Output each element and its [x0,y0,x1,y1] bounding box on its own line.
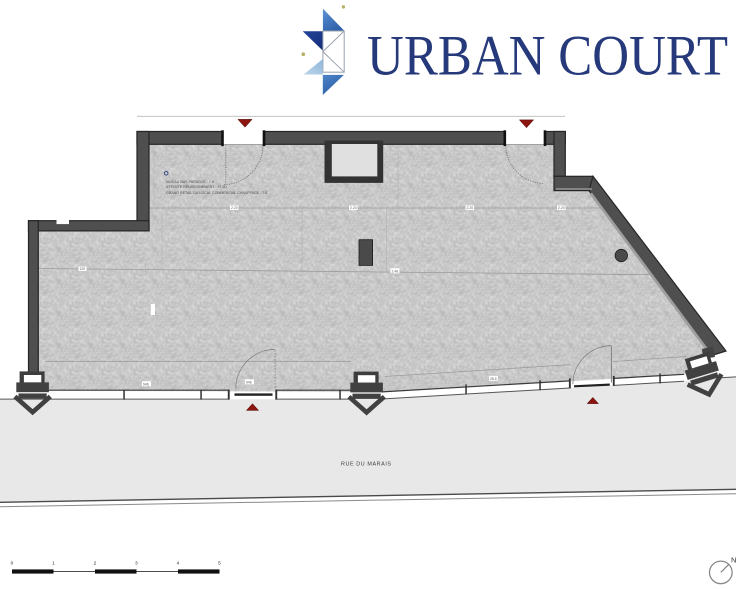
svg-text:0: 0 [11,561,14,566]
svg-text:NIVEAU BAS PARDOSE : 7.8: NIVEAU BAS PARDOSE : 7.8 [166,180,214,184]
svg-text:2.20: 2.20 [467,206,474,210]
svg-text:URBAN COURT: URBAN COURT [367,25,728,88]
svg-text:2.46: 2.46 [392,269,399,273]
svg-text:120: 120 [80,267,86,271]
svg-text:N: N [731,556,736,565]
svg-text:RUE DU MARAIS: RUE DU MARAIS [341,462,392,468]
svg-text:2: 2 [94,561,97,566]
svg-text:4: 4 [177,561,180,566]
svg-text:28.5: 28.5 [490,377,497,381]
svg-text:946: 946 [246,380,252,384]
svg-text:GRAND RETAIL DU LOCAL COMMERCI: GRAND RETAIL DU LOCAL COMMERCIAL CHAUFFA… [166,191,267,195]
svg-text:2.20: 2.20 [231,206,238,210]
svg-text:3: 3 [135,561,138,566]
svg-text:2.20: 2.20 [350,206,357,210]
svg-text:5: 5 [218,561,221,566]
svg-text:2.20: 2.20 [558,206,565,210]
svg-text:1: 1 [52,561,55,566]
svg-text:ATTENTE RENSEIGNEMENT : +7.50: ATTENTE RENSEIGNEMENT : +7.50 [166,185,226,189]
svg-text:946: 946 [143,382,149,386]
